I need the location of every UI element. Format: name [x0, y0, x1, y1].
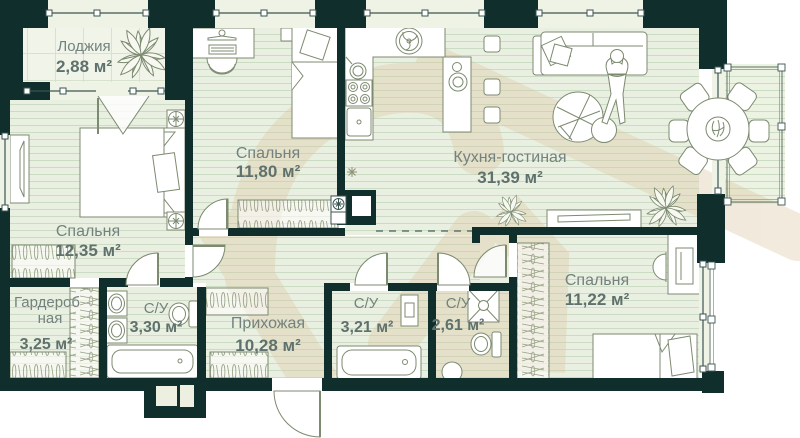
svg-text:Спальня: Спальня [56, 223, 120, 240]
svg-text:С/У: С/У [144, 300, 169, 317]
svg-text:Спальня: Спальня [565, 272, 629, 289]
svg-text:2,88 м²: 2,88 м² [56, 57, 112, 76]
svg-text:Прихожая: Прихожая [231, 315, 305, 332]
svg-text:Кухня-гостиная: Кухня-гостиная [453, 149, 566, 166]
svg-text:Спальня: Спальня [236, 145, 300, 162]
svg-text:ная: ная [38, 310, 63, 327]
svg-text:11,22 м²: 11,22 м² [565, 290, 630, 309]
svg-text:С/У: С/У [446, 295, 471, 312]
svg-text:10,28 м²: 10,28 м² [235, 336, 301, 355]
svg-text:Гардероб: Гардероб [14, 294, 80, 311]
svg-text:Лоджия: Лоджия [57, 38, 110, 55]
svg-text:12,35 м²: 12,35 м² [55, 241, 121, 260]
svg-text:3,21 м²: 3,21 м² [341, 319, 394, 336]
svg-text:31,39 м²: 31,39 м² [477, 168, 543, 187]
svg-text:3,25 м²: 3,25 м² [20, 336, 73, 353]
svg-text:3,30 м²: 3,30 м² [130, 319, 183, 336]
svg-text:11,80 м²: 11,80 м² [236, 162, 301, 181]
svg-text:2,61 м²: 2,61 м² [432, 317, 485, 334]
svg-text:С/У: С/У [354, 295, 379, 312]
